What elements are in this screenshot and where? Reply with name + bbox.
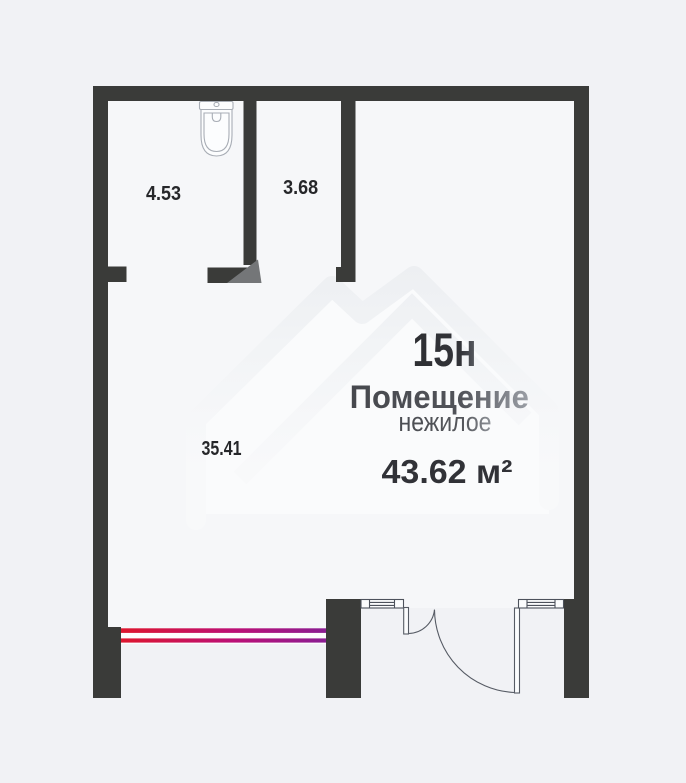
svg-text:15н: 15н	[413, 323, 477, 376]
svg-text:4.53: 4.53	[146, 183, 181, 205]
svg-text:3.68: 3.68	[283, 177, 318, 199]
svg-text:нежилое: нежилое	[399, 407, 492, 437]
svg-text:35.41: 35.41	[202, 438, 242, 460]
svg-text:43.62 м²: 43.62 м²	[382, 453, 513, 490]
